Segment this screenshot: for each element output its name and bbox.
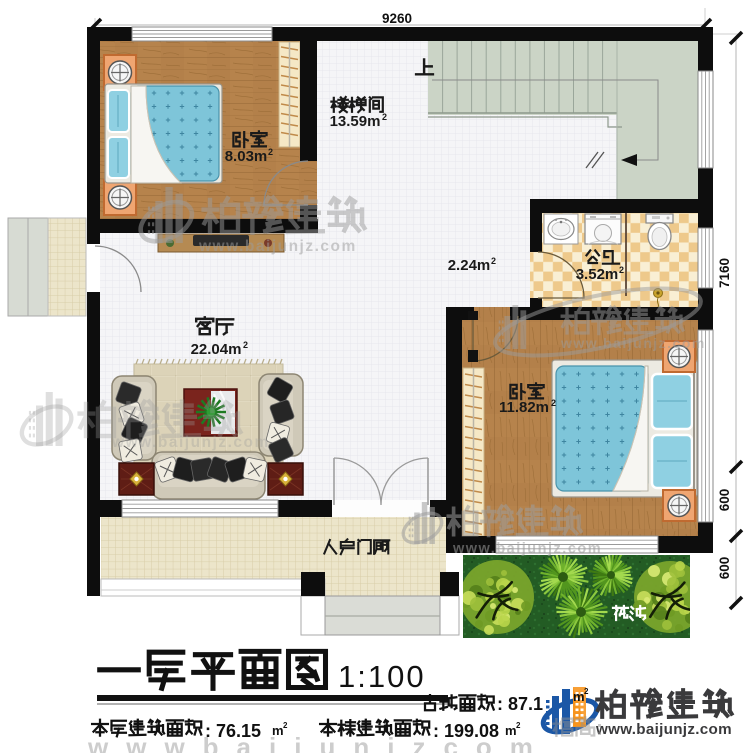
svg-text::: : [596, 717, 603, 740]
svg-text:13.59m: 13.59m [330, 113, 381, 130]
svg-text:: 87.1: : 87.1 [497, 694, 543, 714]
svg-text:2.24m: 2.24m [448, 257, 491, 274]
svg-text:11.82m: 11.82m [499, 399, 549, 416]
svg-text:9260: 9260 [382, 11, 412, 26]
svg-text:2: 2 [551, 398, 556, 408]
svg-text:600: 600 [717, 557, 732, 580]
svg-text:wwwbaijunjzcom: wwwbaijunjzcom [87, 732, 551, 753]
svg-text:2: 2 [243, 340, 248, 350]
svg-text:8.03m: 8.03m [225, 148, 268, 165]
svg-text:7160: 7160 [717, 258, 732, 288]
svg-text:22.04m: 22.04m [191, 341, 242, 358]
svg-text:2: 2 [283, 721, 288, 730]
svg-text:3.52m: 3.52m [576, 266, 619, 283]
svg-text:2: 2 [268, 147, 273, 157]
svg-text:1:100: 1:100 [338, 659, 426, 694]
svg-text:m: m [573, 689, 585, 704]
svg-text:www.baijunjz.com: www.baijunjz.com [560, 335, 706, 351]
svg-text:2: 2 [491, 256, 496, 266]
svg-text:www.baijunjz.com: www.baijunjz.com [198, 238, 357, 255]
svg-text:2: 2 [619, 265, 624, 275]
svg-text:2: 2 [584, 687, 589, 696]
svg-text:www.baijunjz.com: www.baijunjz.com [595, 721, 732, 738]
svg-text:2: 2 [382, 112, 387, 122]
svg-text:600: 600 [717, 489, 732, 512]
svg-text:www.baijunjz.com: www.baijunjz.com [452, 541, 602, 557]
svg-text:2: 2 [516, 721, 521, 730]
svg-text:www.baijunjz.com: www.baijunjz.com [111, 434, 270, 451]
